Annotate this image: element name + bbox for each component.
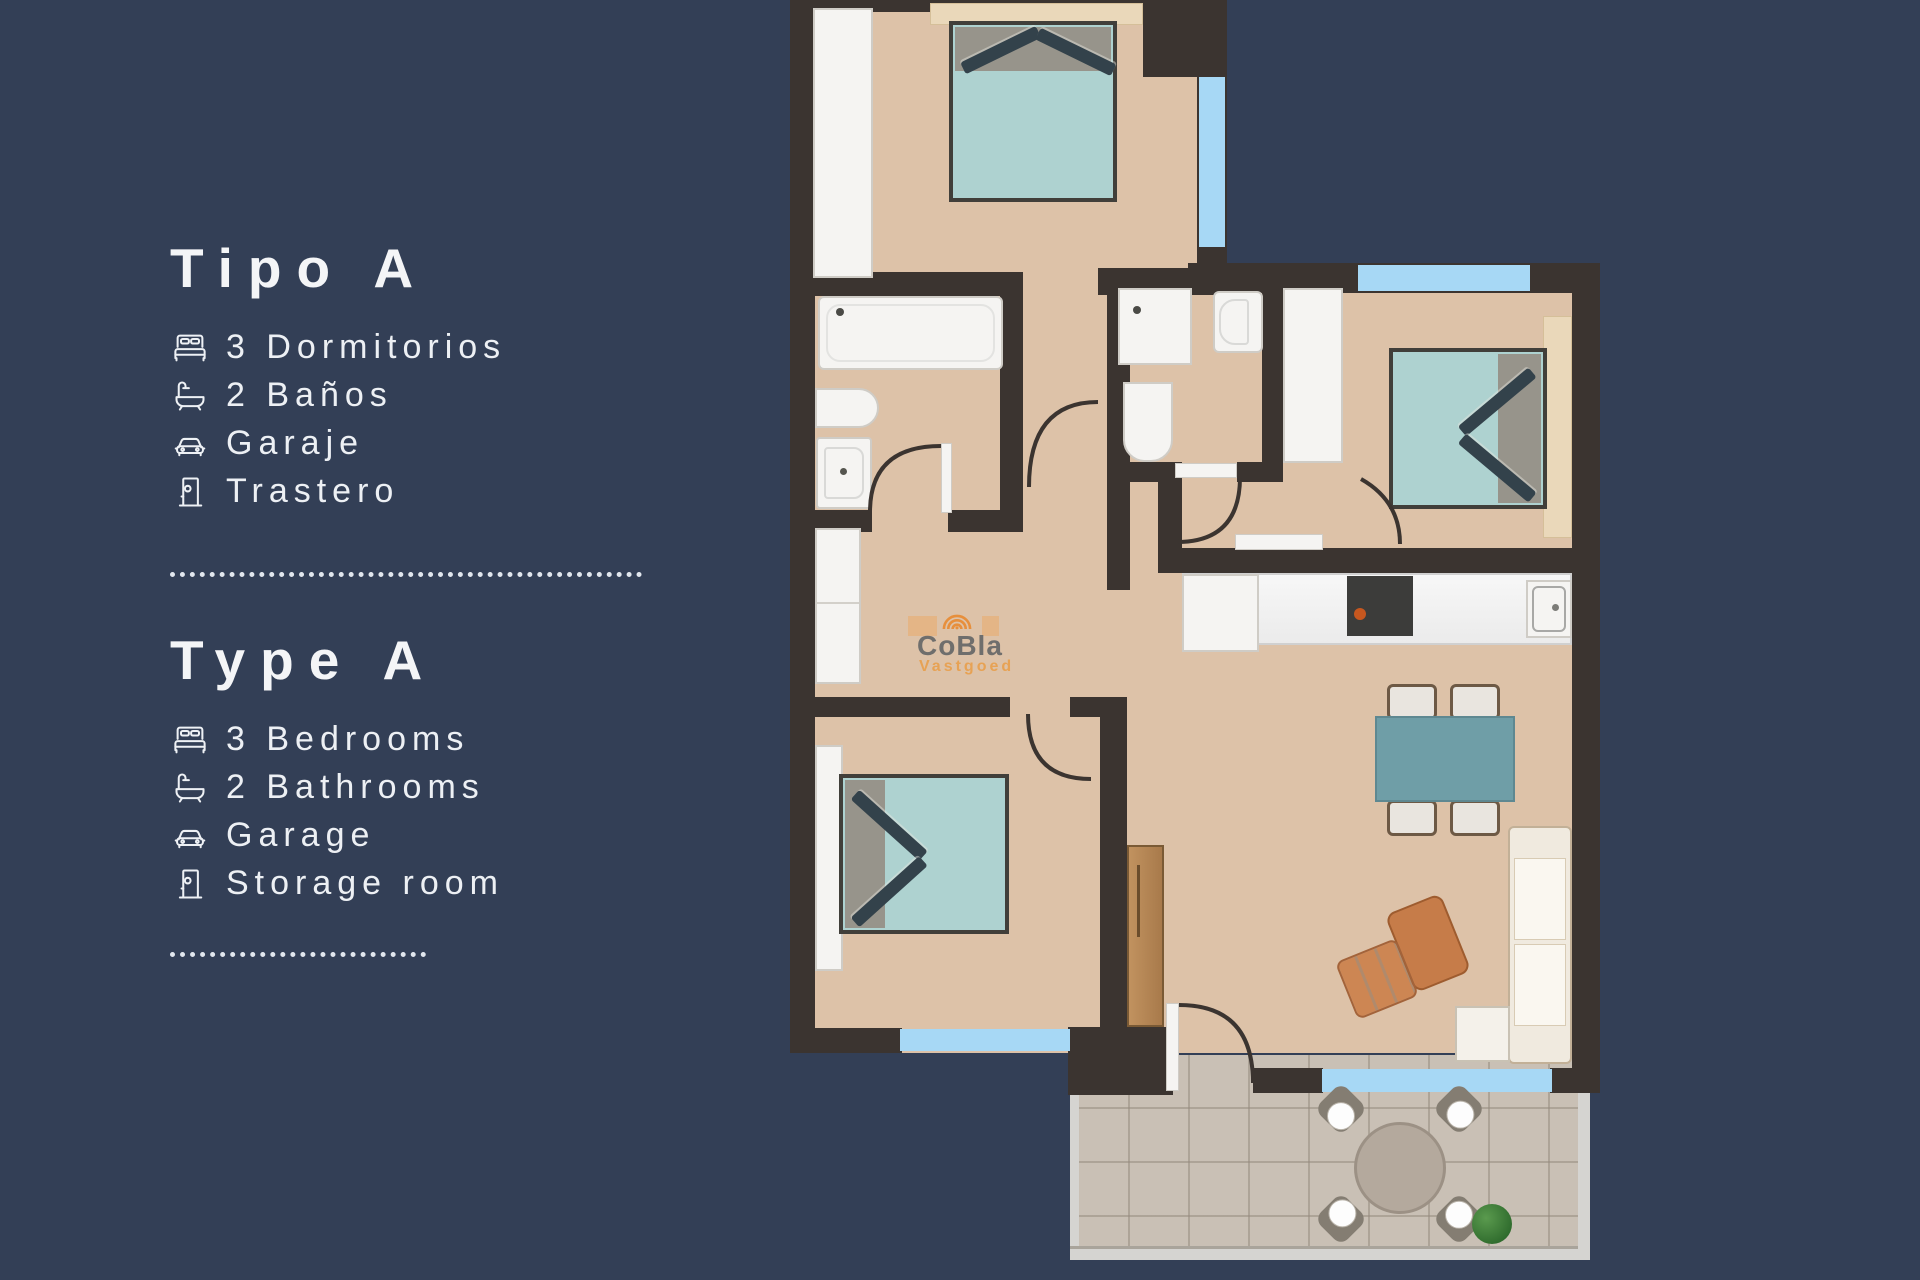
wardrobe-bedroom2 [1283,288,1343,463]
headboard-nightstands-bedroom2 [1543,316,1572,538]
side-table [1455,1006,1510,1062]
wall-kitchen-top [1158,548,1600,573]
window-bedroom2 [1358,265,1530,291]
dining-chair-1 [1387,684,1437,720]
toilet-bath2-bowl [1219,299,1249,345]
kitchen-sink-faucet [1552,604,1559,611]
shower-tray [1118,288,1192,365]
wall-bath2-bottom-b [1237,462,1262,482]
terrace-rail-bottom [1070,1246,1590,1260]
watermark-text-secondary: Vastgoed [919,658,1014,676]
kitchen-stove [1347,576,1413,636]
dining-chair-3 [1387,800,1437,836]
sofa-cushion-2 [1514,944,1566,1026]
wall-corridor-bottom [790,697,1010,717]
terrace-table [1354,1122,1446,1214]
window-bedroom1 [1199,77,1225,247]
sink-bath1 [815,388,879,428]
dining-table [1375,716,1515,802]
kitchen-sink-basin [1532,586,1566,632]
closet-corridor [815,528,861,684]
wardrobe-bedroom1 [813,8,873,278]
sink-bath2 [1123,382,1173,462]
wall-left [790,0,815,1053]
terrace-plant [1472,1204,1512,1244]
closet-corridor-divider [817,602,859,604]
floor-plan: CoBla Vastgoed [0,0,1920,1280]
wall-bedroom3-right [1100,697,1127,1053]
wall-bottom-left [790,1028,902,1053]
wall-bottom-right-stub [1550,1068,1574,1093]
wardrobe-bedroom3 [815,745,843,971]
wall-right [1572,263,1600,1093]
entry-door-wood [1127,845,1164,1027]
sofa-cushion-1 [1514,858,1566,940]
dining-chair-2 [1450,684,1500,720]
terrace-door-leaf [1166,1003,1179,1091]
headboard-shelf-bedroom1 [930,3,1143,25]
stove-knob [1354,608,1366,620]
wall-bath1-right [1000,272,1023,530]
wall-bath2-right [1262,272,1283,482]
brochure-page: Tipo A 3 Dormitorios 2 Baños Garaje [0,0,1920,1280]
bathtub-drain [836,308,844,316]
door-leaf-bath1 [941,443,952,513]
door-threshold-bath2 [1175,463,1237,478]
wall-entry-chunk [1068,1027,1173,1095]
dining-chair-4 [1450,800,1500,836]
entry-door-handle [1137,865,1140,937]
wall-bath1-bottom-b [948,510,1023,532]
arcs-logo-icon [933,600,981,634]
toilet-bath1-dot [840,468,847,475]
door-leaf-bedroom2 [1235,534,1323,550]
shower-drain [1133,306,1141,314]
window-bedroom3 [900,1029,1070,1051]
terrace-rail-right [1578,1093,1590,1260]
kitchen-fridge [1182,574,1259,652]
bathtub-inner [826,304,995,362]
wall-terrace-door-right [1253,1068,1323,1093]
window-living-terrace [1322,1069,1552,1092]
